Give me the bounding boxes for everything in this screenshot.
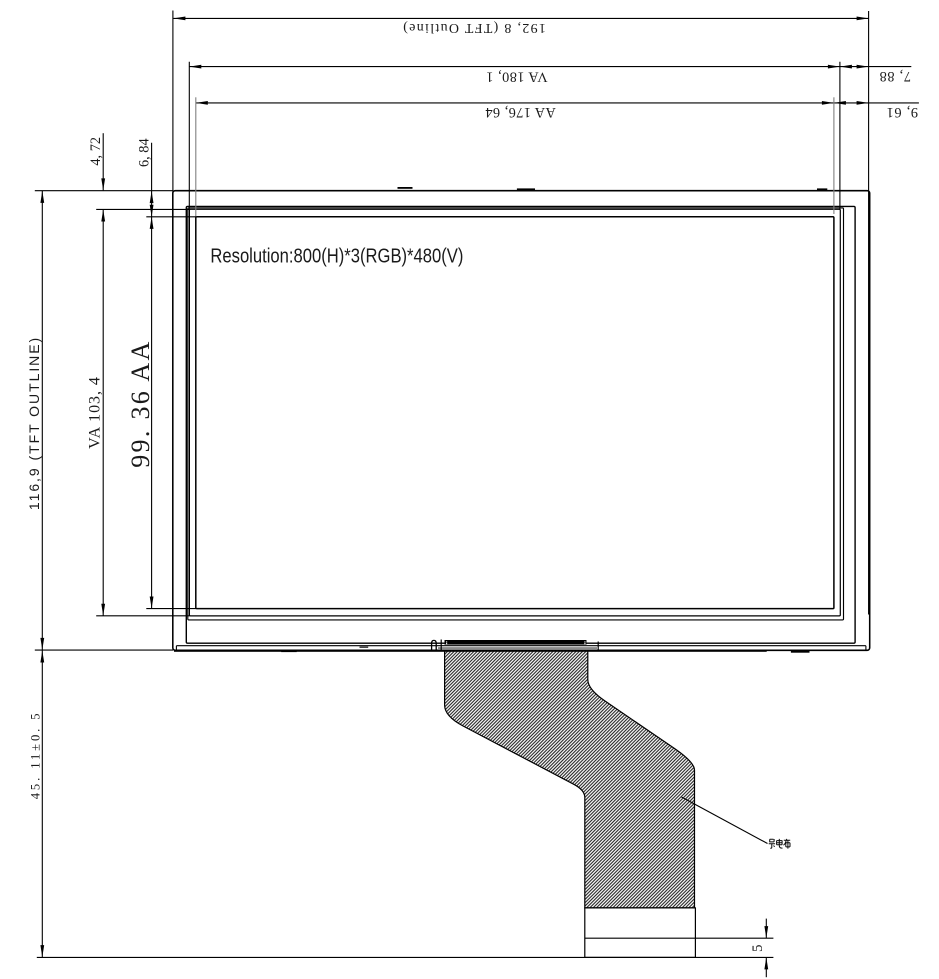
svg-text:AA 176, 64: AA 176, 64 xyxy=(485,104,556,120)
svg-text:Resolution:800(H)*3(RGB)*480(V: Resolution:800(H)*3(RGB)*480(V) xyxy=(210,244,463,267)
svg-text:VA 103, 4: VA 103, 4 xyxy=(87,376,104,449)
svg-text:45. 11±0. 5: 45. 11±0. 5 xyxy=(28,711,42,800)
svg-text:99. 36 AA: 99. 36 AA xyxy=(126,339,155,467)
svg-text:VA 180, 1: VA 180, 1 xyxy=(486,68,548,84)
svg-text:4, 72: 4, 72 xyxy=(88,137,104,166)
svg-text:9, 61: 9, 61 xyxy=(886,104,918,120)
svg-text:116,9 (TFT OUTLINE): 116,9 (TFT OUTLINE) xyxy=(26,336,42,510)
svg-text:6, 84: 6, 84 xyxy=(136,138,152,167)
svg-text:5: 5 xyxy=(750,944,766,952)
svg-text:7, 88: 7, 88 xyxy=(879,68,911,84)
svg-text:192, 8 (TFT Outline): 192, 8 (TFT Outline) xyxy=(402,20,546,35)
